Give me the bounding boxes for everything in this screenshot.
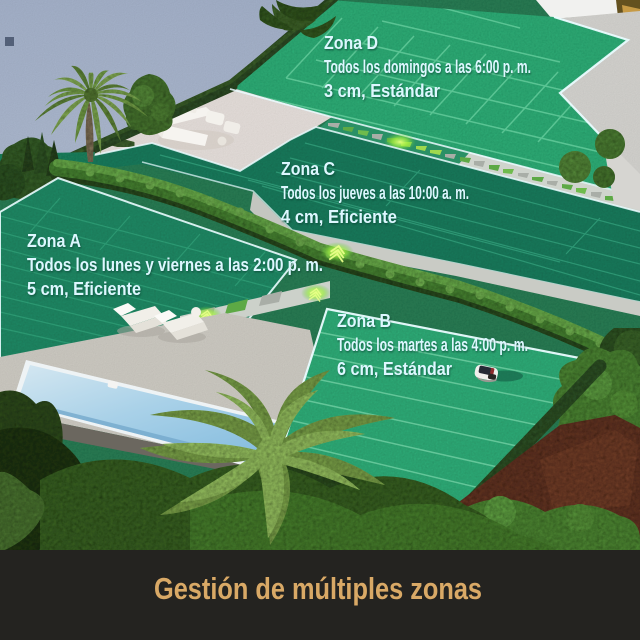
svg-text:Gestión de múltiples zonas: Gestión de múltiples zonas — [154, 571, 482, 606]
svg-text:3 cm, Estándar: 3 cm, Estándar — [324, 81, 440, 101]
svg-text:Zona A: Zona A — [27, 231, 81, 251]
svg-text:4 cm, Eficiente: 4 cm, Eficiente — [281, 207, 397, 227]
svg-text:6 cm, Estándar: 6 cm, Estándar — [337, 359, 452, 379]
svg-text:Zona B: Zona B — [337, 311, 391, 331]
svg-text:Zona D: Zona D — [324, 33, 378, 53]
svg-text:Todos los martes a las 4:00 p.: Todos los martes a las 4:00 p. m. — [337, 335, 528, 355]
svg-text:5 cm, Eficiente: 5 cm, Eficiente — [27, 279, 141, 299]
svg-text:Todos los lunes y viernes a la: Todos los lunes y viernes a las 2:00 p. … — [27, 255, 323, 275]
svg-text:Todos los jueves a las 10:00 a: Todos los jueves a las 10:00 a. m. — [281, 183, 469, 203]
svg-text:Todos los domingos a las 6:00: Todos los domingos a las 6:00 p. m. — [324, 57, 531, 77]
svg-text:Zona C: Zona C — [281, 159, 335, 179]
